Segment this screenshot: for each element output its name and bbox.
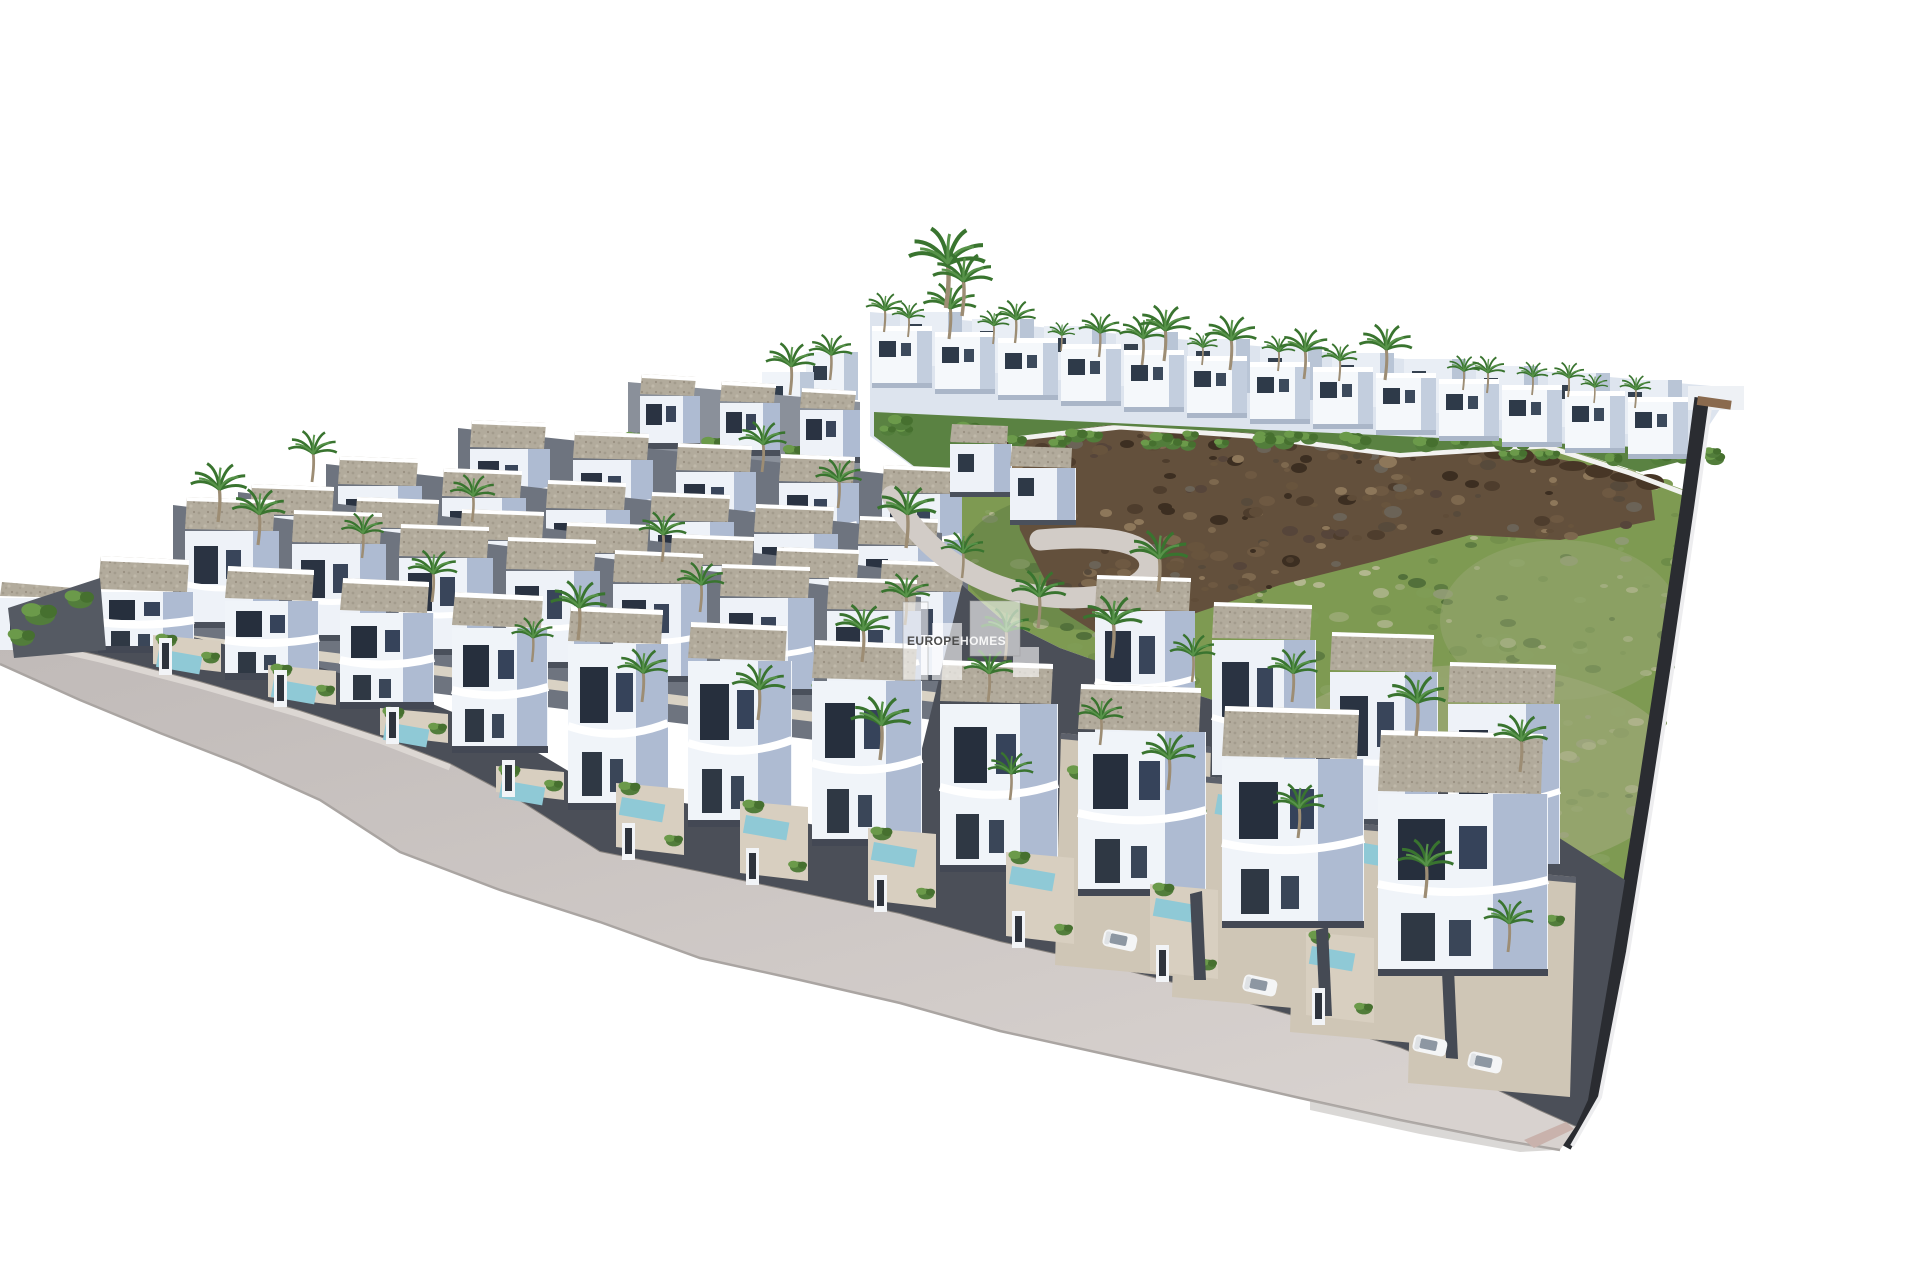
svg-text:HOMES: HOMES [960, 634, 1006, 648]
svg-text:EUROPE: EUROPE [907, 634, 960, 648]
